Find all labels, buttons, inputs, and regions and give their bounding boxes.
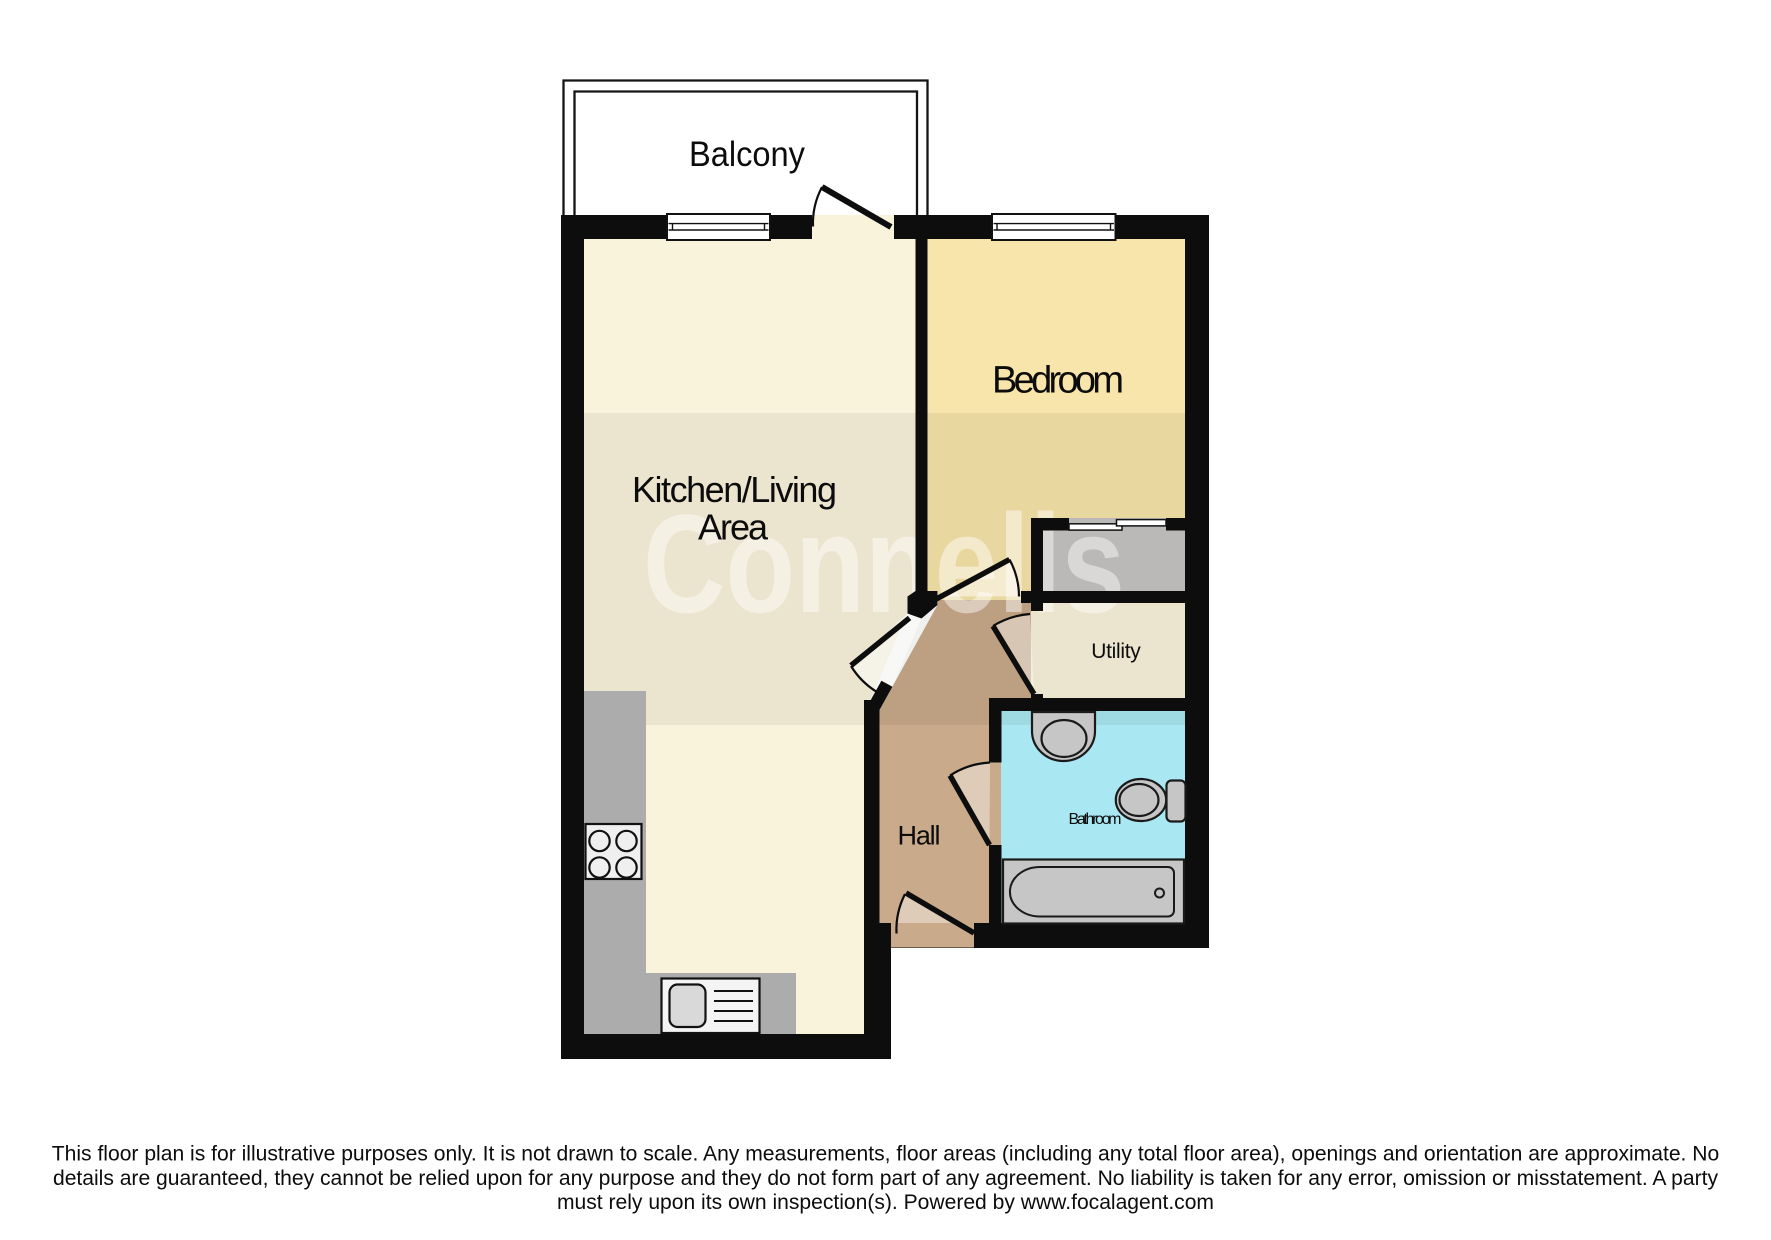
svg-text:Hall: Hall (898, 821, 941, 851)
svg-text:must rely upon its own inspect: must rely upon its own inspection(s). Po… (557, 1191, 1214, 1214)
svg-text:Bathroom: Bathroom (1069, 811, 1122, 828)
svg-text:This floor plan is for illustr: This floor plan is for illustrative purp… (52, 1143, 1720, 1166)
svg-text:Utility: Utility (1091, 640, 1141, 663)
svg-text:details are guaranteed, they c: details are guaranteed, they cannot be r… (53, 1167, 1718, 1190)
svg-text:Kitchen/Living: Kitchen/Living (632, 469, 837, 510)
svg-text:Area: Area (698, 507, 769, 548)
svg-text:Bedroom: Bedroom (992, 360, 1124, 402)
svg-text:Balcony: Balcony (689, 135, 805, 174)
